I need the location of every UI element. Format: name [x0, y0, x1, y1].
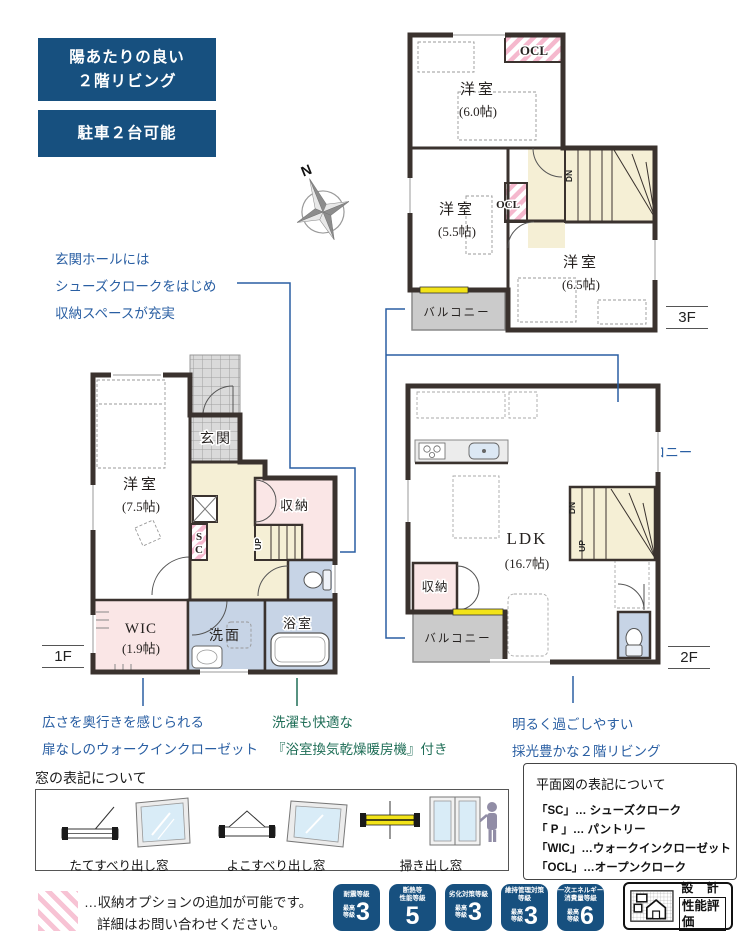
badge-title: 一次エネルギー [558, 887, 604, 895]
f2-balcony-label: バルコニー [424, 632, 491, 645]
toilet-icon [304, 572, 322, 588]
plan-legend-item: 「OCL」…オープンクローク [536, 859, 724, 878]
f3-bedroom3-label: 洋室 [563, 254, 599, 271]
f3-stairs [565, 148, 655, 222]
feature-badge-line: 陽あたりの良い [69, 46, 185, 70]
callout-wic: 広さを奥行きを感じられる 扉なしのウォークインクローゼット [42, 709, 258, 763]
feature-badge-line: 駐車２台可能 [77, 122, 176, 146]
f2-storage-label: 収納 [421, 580, 448, 594]
design-performance-cert-mark: 設 計 性能評価 [623, 882, 733, 930]
f1-bath-label: 浴室 [283, 616, 313, 631]
badge-prefix: 等級 [455, 913, 467, 920]
badge-value: 3 [356, 900, 370, 925]
vertical-sliding-window-icon [44, 793, 194, 849]
f1-sc-label-c: C [195, 544, 203, 556]
performance-badges: 耐震等級 最高 等級 3 断熱等 性能等級 5 劣化対策等級 最高 等級 [333, 884, 604, 931]
badge-title: 維持管理対策 [505, 887, 544, 895]
f3-bedroom2-size: (5.5帖) [438, 224, 476, 239]
f2-up-label: UP [577, 540, 587, 552]
badge-deterioration-grade: 劣化対策等級 最高 等級 3 [445, 884, 492, 931]
window-legend-item-horizontal: よこすべり出し窓 [201, 793, 351, 874]
badge-value: 6 [580, 904, 594, 929]
washbasin-icon [192, 646, 222, 668]
f3-balcony-label: バルコニー [423, 306, 490, 319]
f3-ocl-top-label: OCL [520, 43, 549, 58]
f2-ldk-label: LDK [507, 529, 548, 548]
bathtub-icon [271, 633, 329, 666]
floor-label-1f: 1F [42, 645, 84, 668]
callout-line: 『浴室換気乾燥暖房機』付き [272, 736, 448, 763]
f1-wic-size: (1.9帖) [122, 641, 160, 656]
callout-line: 洗濯も快適な [272, 709, 448, 736]
window-legend-box: たてすべり出し窓 よこすべり出し窓 [35, 789, 509, 871]
compass-icon: N [286, 158, 360, 256]
badge-energy-grade: 一次エネルギー 消費量等級 最高 等級 6 [557, 884, 604, 931]
window-legend-title: 窓の表記について [35, 768, 147, 788]
f3-ocl-mid-label: OCL [496, 199, 520, 211]
plan-legend-box: 平面図の表記について 「SC」… シューズクローク 「 P 」… パントリー 「… [523, 763, 737, 880]
callout-line: 明るく過ごしやすい [512, 711, 661, 738]
window-legend-label: 掃き出し窓 [358, 855, 504, 874]
note-line: …収納オプションの追加が可能です。 [84, 892, 312, 914]
note-line: 詳細はお問い合わせください。 [97, 914, 312, 936]
plan-legend-item: 「 P 」… パントリー [536, 821, 724, 840]
person-icon [480, 802, 497, 842]
f2-dn-label: DN [567, 502, 577, 514]
badge-prefix: 等級 [343, 913, 355, 920]
badge-prefix: 最高 [567, 910, 579, 917]
sweep-out-window-icon [358, 793, 504, 849]
cert-evaluation-label: 性能評価 [679, 897, 726, 931]
window-legend-item-sweep: 掃き出し窓 [358, 793, 504, 874]
badge-insulation-grade: 断熱等 性能等級 5 [389, 884, 436, 931]
f1-sanitary-label: 洗面 [209, 628, 241, 644]
f2-yellow-window [453, 609, 503, 615]
callout-bath-dryer: 洗濯も快適な 『浴室換気乾燥暖房機』付き [272, 709, 448, 763]
f1-up-label: UP [253, 538, 263, 550]
badge-title: 断熱等 [403, 887, 423, 895]
window-legend-label: たてすべり出し窓 [44, 855, 194, 874]
feature-badge-parking: 駐車２台可能 [38, 110, 216, 157]
floor-label-2f: 2F [668, 646, 710, 669]
callout-line: 採光豊かな２階リビング [512, 738, 661, 765]
badge-value: 5 [406, 904, 420, 929]
badge-seismic-grade: 耐震等級 最高 等級 3 [333, 884, 380, 931]
cert-design-label: 設 計 [681, 881, 723, 896]
f3-bedroom2-label: 洋室 [439, 201, 475, 218]
f1-bedroom-label: 洋室 [123, 476, 159, 493]
storage-option-hatch-icon [38, 891, 78, 931]
f1-sc-label-s: S [196, 531, 202, 543]
badge-maintenance-grade: 維持管理対策 等級 最高 等級 3 [501, 884, 548, 931]
badge-prefix: 最高 [511, 910, 523, 917]
window-legend-label: よこすべり出し窓 [201, 855, 351, 874]
callout-line: 広さを奥行きを感じられる [42, 709, 258, 736]
badge-prefix: 等級 [511, 917, 523, 924]
badge-value: 3 [468, 900, 482, 925]
f3-bedroom1-label: 洋室 [460, 81, 496, 98]
badge-prefix: 最高 [343, 906, 355, 913]
feature-badge-sunny-living: 陽あたりの良い ２階リビング [38, 38, 216, 101]
callout-line: 玄関ホールには [55, 246, 216, 273]
callout-entry-hall: 玄関ホールには シューズクロークをはじめ 収納スペースが充実 [55, 246, 216, 327]
f1-bedroom-size: (7.5帖) [122, 499, 160, 514]
f3-dn-label: DN [564, 170, 574, 182]
callout-bright-living: 明るく過ごしやすい 採光豊かな２階リビング [512, 711, 661, 765]
badge-prefix: 最高 [455, 906, 467, 913]
horizontal-sliding-window-icon [201, 793, 351, 849]
f1-closet-x [193, 496, 217, 522]
window-legend-item-vertical: たてすべり出し窓 [44, 793, 194, 874]
plan-legend-title: 平面図の表記について [536, 774, 724, 793]
compass-north-label: N [298, 161, 313, 180]
plan-legend-item: 「WIC」…ウォークインクローゼット [536, 840, 724, 859]
house-grid-icon [630, 887, 674, 925]
f3-hall [528, 148, 565, 248]
storage-option-note: …収納オプションの追加が可能です。 詳細はお問い合わせください。 [84, 892, 312, 936]
stove-icon [419, 443, 445, 459]
f3-bedroom3-size: (6.5帖) [562, 277, 600, 292]
f2-kitchen-counter [415, 440, 508, 463]
feature-badge-line: ２階リビング [77, 70, 176, 94]
f1-wic-label: WIC [125, 621, 157, 637]
f1-genkan-label: 玄関 [200, 430, 232, 447]
badge-value: 3 [524, 904, 538, 929]
floor-plan-2f: LDK (16.7帖) 収納 バルコニー DN UP [395, 380, 665, 670]
floor-plan-3f: OCL 洋室 (6.0帖) 洋室 (5.5帖) OCL 洋室 (6.5帖) バル… [400, 28, 670, 335]
f3-yellow-window [420, 287, 468, 293]
f3-bedroom1-size: (6.0帖) [459, 104, 497, 119]
f2-ldk-size: (16.7帖) [505, 556, 549, 571]
floor-plan-1f: 玄関 洋室 (7.5帖) 収納 S C WIC (1.9帖) 洗面 浴室 UP [85, 350, 340, 680]
callout-line: 収納スペースが充実 [55, 300, 216, 327]
floor-label-3f: 3F [666, 306, 708, 329]
flyer-page: 陽あたりの良い ２階リビング 駐車２台可能 N 玄関ホールには シューズクローク… [0, 0, 750, 952]
f1-bath [265, 600, 335, 672]
badge-prefix: 等級 [567, 917, 579, 924]
plan-legend-item: 「SC」… シューズクローク [536, 802, 724, 821]
callout-line: 扉なしのウォークインクローゼット [42, 736, 258, 763]
callout-line: シューズクロークをはじめ [55, 273, 216, 300]
f1-storage-label: 収納 [280, 498, 310, 513]
